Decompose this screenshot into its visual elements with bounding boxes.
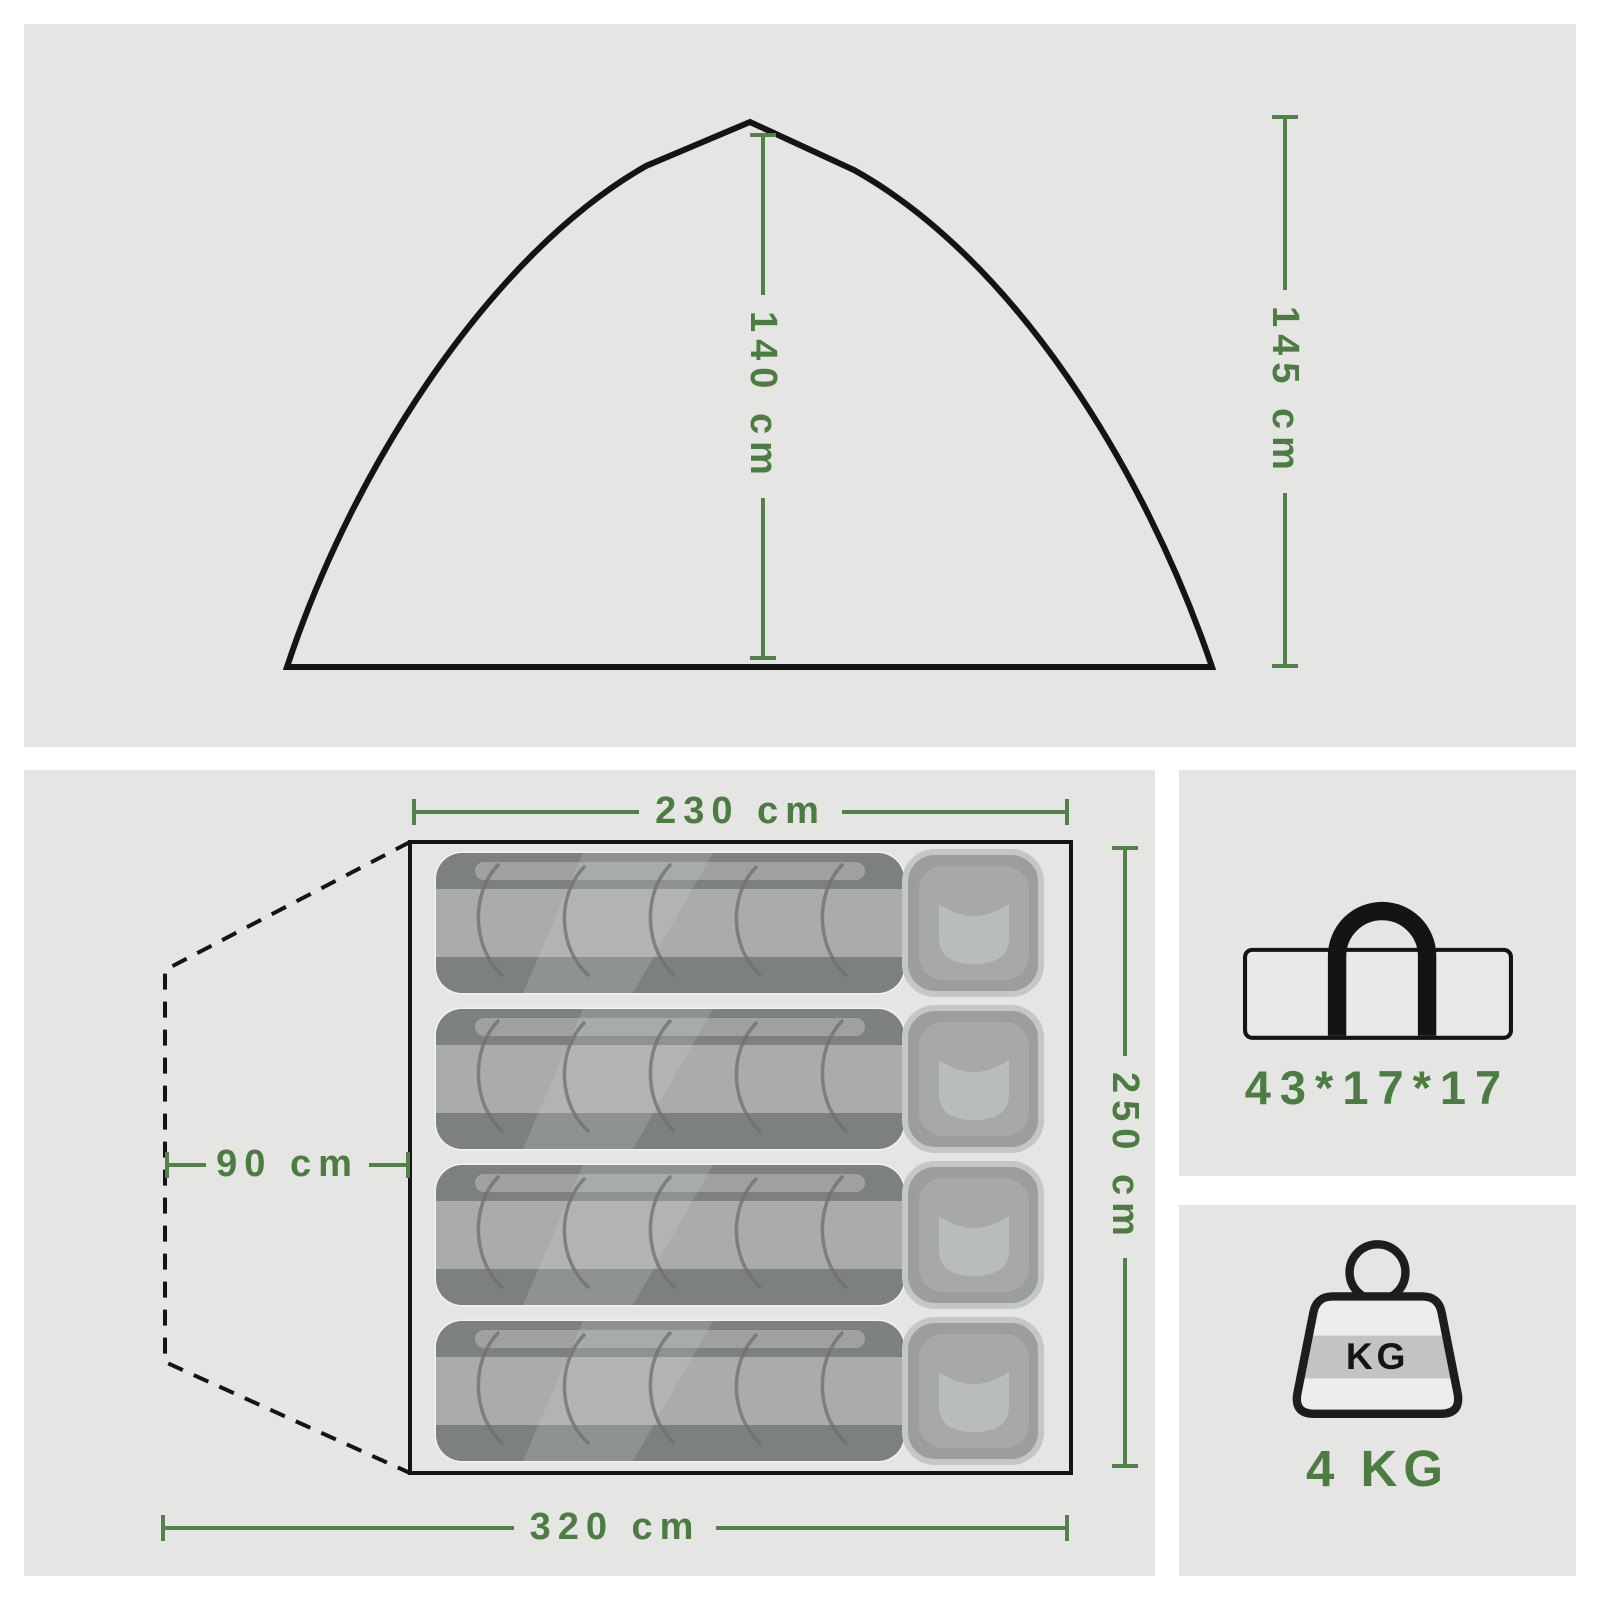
kg-badge-text: KG	[1346, 1335, 1409, 1377]
inner-height-label: 140 cm	[741, 295, 784, 498]
dimension-line	[369, 1163, 406, 1167]
dimension-line	[1123, 1258, 1127, 1464]
dimension-line	[1123, 850, 1127, 1056]
overall-width-label: 320 cm	[514, 1506, 717, 1549]
packed-size-label: 43*17*17	[1245, 1060, 1510, 1115]
dimension-line	[716, 1526, 1065, 1530]
dimension-overall-width: 320 cm	[161, 1506, 1069, 1549]
floor-depth-label: 250 cm	[1103, 1056, 1146, 1259]
carry-bag-icon	[1243, 870, 1513, 1042]
dimension-outer-height: 145 cm	[1263, 115, 1306, 668]
dimension-vestibule-depth: 90 cm	[165, 1143, 410, 1186]
dimension-line	[1283, 493, 1287, 664]
dimension-floor-depth: 250 cm	[1103, 846, 1146, 1468]
weight-panel: KG 4 KG	[1179, 1205, 1576, 1576]
dimension-line	[761, 498, 765, 656]
dimension-cap	[750, 656, 776, 660]
dimension-cap	[406, 1152, 410, 1178]
dimension-line	[761, 137, 765, 295]
dimension-cap	[1065, 799, 1069, 825]
dimension-line	[165, 1526, 514, 1530]
sleeping-pad-icon	[436, 1008, 1041, 1150]
floor-width-label: 230 cm	[639, 790, 842, 833]
sleeping-pad-icon	[436, 1320, 1041, 1462]
dimension-line	[416, 810, 639, 814]
dimension-cap	[1272, 664, 1298, 668]
dimension-floor-width: 230 cm	[412, 790, 1069, 833]
dimension-line	[842, 810, 1065, 814]
sleeping-pad-icon	[436, 852, 1041, 994]
sleeping-pad-icon	[436, 1164, 1041, 1306]
weight-value-label: 4 KG	[1306, 1439, 1449, 1498]
weight-icon: KG	[1275, 1235, 1480, 1425]
vestibule-depth-label: 90 cm	[206, 1143, 369, 1186]
floor-plan-panel: 230 cm 250 cm 90 cm 320 cm	[24, 770, 1155, 1576]
dimension-line	[169, 1163, 206, 1167]
dimension-inner-height: 140 cm	[741, 133, 784, 660]
dimension-cap	[1065, 1515, 1069, 1541]
outer-height-label: 145 cm	[1263, 290, 1306, 493]
tent-side-outline-icon	[24, 24, 1576, 747]
side-view-panel: 140 cm 145 cm	[24, 24, 1576, 747]
dimension-cap	[1112, 1464, 1138, 1468]
dimension-line	[1283, 119, 1287, 290]
packed-size-panel: 43*17*17	[1179, 770, 1576, 1176]
